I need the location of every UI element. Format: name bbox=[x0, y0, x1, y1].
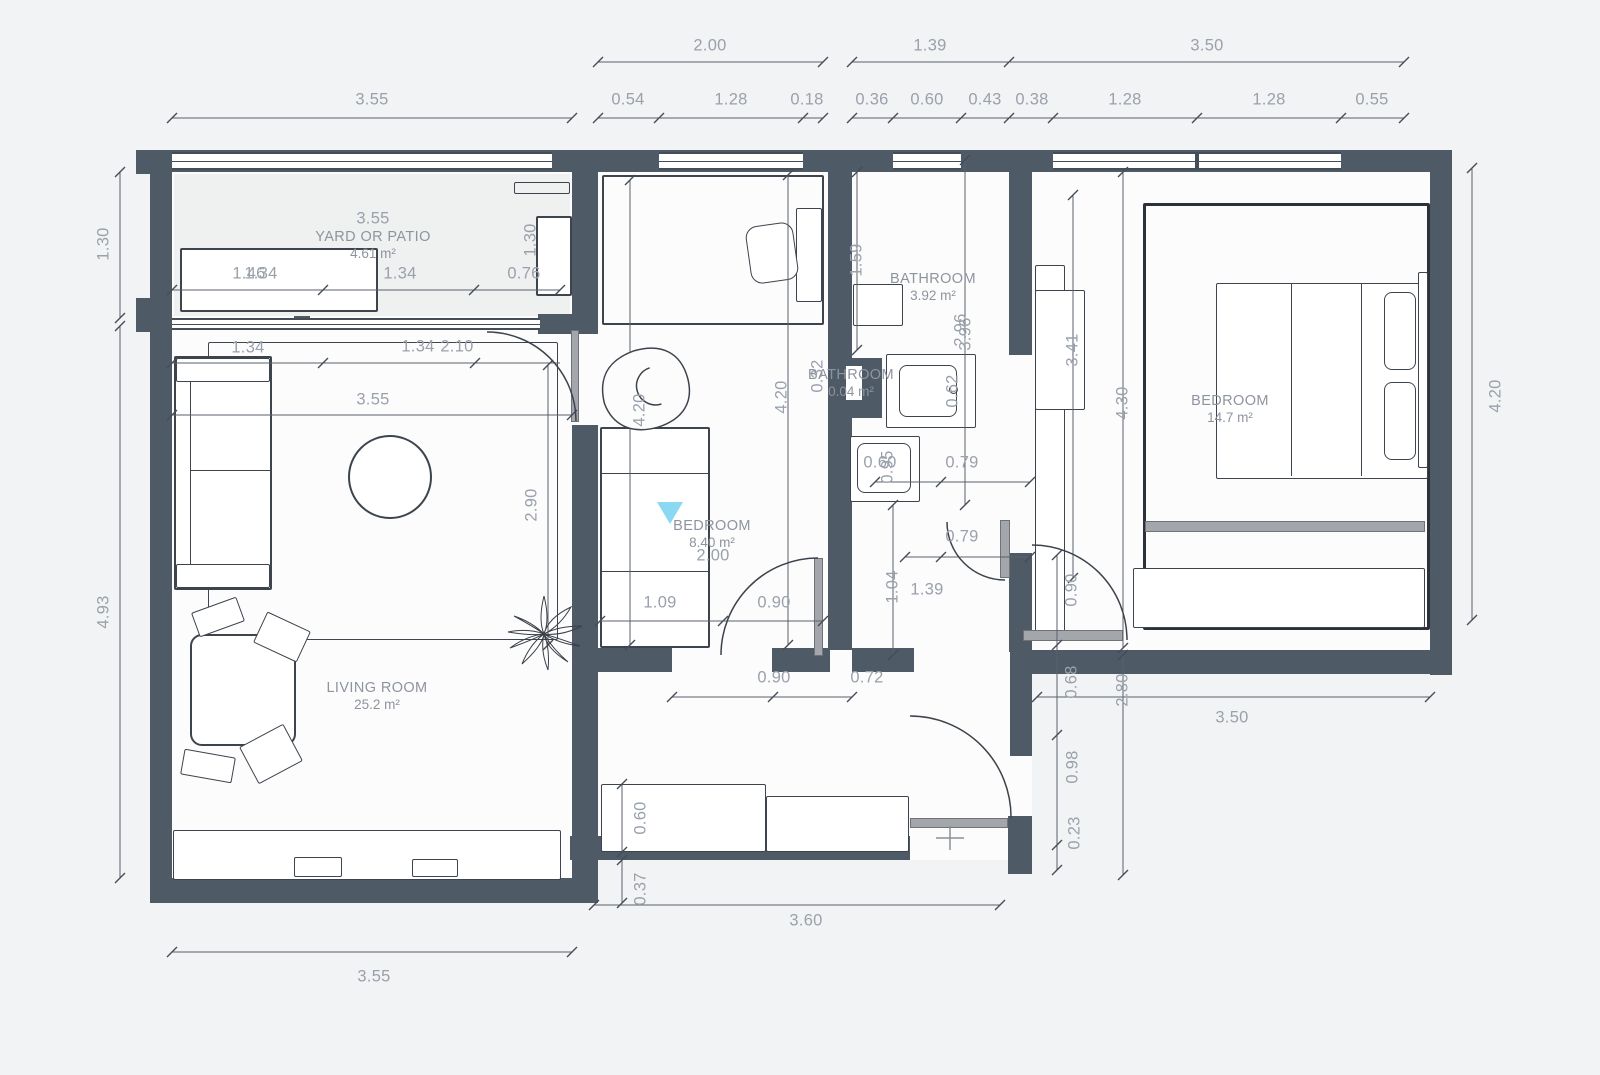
window-mullion bbox=[1195, 152, 1199, 170]
pillow bbox=[1384, 292, 1416, 370]
media-box bbox=[412, 859, 458, 877]
wall-stub-exterior-mid bbox=[136, 298, 150, 332]
dim-label: 0.79 bbox=[945, 528, 978, 547]
window-sill-shelf bbox=[514, 182, 570, 194]
dim-label: 0.90 bbox=[757, 669, 790, 688]
bed-divider-line bbox=[1361, 284, 1362, 476]
dim-label: 4.20 bbox=[631, 393, 650, 426]
dim-label: 0.95 bbox=[879, 450, 898, 483]
door-leaf-bedroom-right bbox=[1023, 630, 1123, 641]
tv-unit bbox=[294, 857, 342, 877]
dim-label: 0.36 bbox=[855, 91, 888, 110]
yard-side-table bbox=[536, 216, 572, 296]
dim-label: 3.55 bbox=[355, 91, 388, 110]
wall-bath-corridor-upper bbox=[1009, 150, 1032, 355]
dim-label: 2.90 bbox=[523, 488, 542, 521]
room-label: YARD OR PATIO4.61 m² bbox=[315, 228, 431, 263]
dim-label: 3.50 bbox=[1215, 709, 1248, 728]
dresser bbox=[1133, 568, 1425, 628]
wall-entrance-corner bbox=[1008, 816, 1032, 874]
bed-pillow-line bbox=[602, 473, 708, 474]
wall-right bbox=[1430, 150, 1452, 675]
window-bedroom-middle bbox=[659, 152, 803, 170]
dim-label: 1.28 bbox=[1252, 91, 1285, 110]
window-yard-living bbox=[172, 318, 540, 330]
wall-yard-divider-stub bbox=[538, 314, 598, 334]
room-name: BEDROOM bbox=[673, 517, 751, 535]
tv-console bbox=[173, 830, 561, 880]
room-name: LIVING ROOM bbox=[326, 679, 427, 697]
dim-label: 1.04 bbox=[884, 570, 903, 603]
room-area: 3.92 m² bbox=[890, 288, 976, 305]
dim-label: 4.93 bbox=[95, 595, 114, 628]
door-leaf-yard-living bbox=[571, 330, 579, 422]
dim-label: 1.59 bbox=[848, 243, 867, 276]
floor-plan: 2.001.393.503.550.541.280.180.360.600.43… bbox=[0, 0, 1600, 1075]
window-bathroom bbox=[893, 152, 961, 170]
dim-label: 2.00 bbox=[693, 37, 726, 56]
dim-label: 1.34 bbox=[231, 339, 264, 358]
desk bbox=[796, 208, 822, 302]
room-name: BATHROOM bbox=[890, 270, 976, 288]
headboard bbox=[1418, 272, 1428, 468]
dim-label: 0.76 bbox=[507, 265, 540, 284]
dim-label: 4.20 bbox=[1487, 379, 1506, 412]
dim-label: 3.55 bbox=[356, 210, 389, 229]
dim-label: 1.34 bbox=[383, 265, 416, 284]
dim-label: 1.34 bbox=[244, 265, 277, 284]
room-name: BATHROOM bbox=[808, 366, 894, 384]
dim-label: 1.28 bbox=[714, 91, 747, 110]
dim-label: 3.55 bbox=[357, 968, 390, 987]
kitchen-counter-right bbox=[766, 796, 909, 852]
sofa-cushion-line bbox=[190, 470, 270, 471]
dim-label: 0.68 bbox=[1063, 665, 1082, 698]
dim-label: 3.96 bbox=[957, 317, 976, 350]
window-yard bbox=[172, 152, 552, 170]
door-leaf-entrance bbox=[910, 818, 1008, 828]
room-name: YARD OR PATIO bbox=[315, 228, 431, 246]
sofa-armrest-top bbox=[176, 358, 270, 382]
room-area: 25.2 m² bbox=[326, 697, 427, 714]
dim-label: 0.60 bbox=[632, 801, 651, 834]
dim-label: 3.50 bbox=[1190, 37, 1223, 56]
sink-unit bbox=[886, 354, 976, 428]
closet-sliding-door bbox=[1145, 521, 1425, 532]
dim-label: 0.37 bbox=[632, 872, 651, 905]
room-label: BEDROOM8.40 m² bbox=[673, 517, 751, 552]
dim-label: 2.80 bbox=[1114, 673, 1133, 706]
dim-label: 4.20 bbox=[773, 380, 792, 413]
sofa bbox=[174, 356, 272, 590]
dim-label: 3.60 bbox=[789, 912, 822, 931]
dim-label: 1.34 bbox=[401, 338, 434, 357]
dim-label: 0.72 bbox=[850, 669, 883, 688]
dim-label: 0.54 bbox=[611, 91, 644, 110]
sofa-back-line bbox=[190, 382, 191, 564]
dim-label: 0.60 bbox=[910, 91, 943, 110]
dim-label: 0.90 bbox=[1063, 573, 1082, 606]
door-leaf-bedroom-middle bbox=[814, 558, 823, 656]
wall-bedroom-bath-lower bbox=[828, 404, 852, 650]
dim-label: 1.39 bbox=[910, 581, 943, 600]
wall-bedroom-south-left bbox=[598, 648, 672, 672]
room-area: 14.7 m² bbox=[1191, 410, 1269, 427]
dim-label: 0.98 bbox=[1064, 750, 1083, 783]
bed-blanket-line bbox=[602, 571, 708, 572]
pillow bbox=[1384, 382, 1416, 460]
room-area: 4.61 m² bbox=[315, 246, 431, 263]
dim-label: 3.41 bbox=[1064, 333, 1083, 366]
wall-living-south bbox=[150, 878, 584, 903]
dim-label: 0.90 bbox=[757, 594, 790, 613]
dim-label: 1.30 bbox=[95, 227, 114, 260]
dim-label: 0.79 bbox=[945, 454, 978, 473]
room-name: BEDROOM bbox=[1191, 392, 1269, 410]
kitchen-counter-left bbox=[601, 784, 766, 852]
wall-corridor-right bbox=[1010, 650, 1032, 756]
dim-label: 1.39 bbox=[913, 37, 946, 56]
wall-stub-exterior-top bbox=[136, 150, 150, 174]
sofa-armrest-bottom bbox=[176, 564, 270, 588]
dim-label: 0.18 bbox=[790, 91, 823, 110]
dim-label: 0.43 bbox=[968, 91, 1001, 110]
dim-label: 0.62 bbox=[944, 374, 963, 407]
door-leaf-corridor bbox=[1000, 520, 1010, 578]
dim-label: 1.28 bbox=[1108, 91, 1141, 110]
bed-divider-line bbox=[1291, 284, 1292, 476]
room-label: BEDROOM14.7 m² bbox=[1191, 392, 1269, 427]
coffee-table bbox=[348, 435, 432, 519]
dim-label: 1.30 bbox=[522, 223, 541, 256]
room-label: BATHROOM3.92 m² bbox=[890, 270, 976, 305]
dim-label: 0.23 bbox=[1066, 816, 1085, 849]
room-area: 0.04 m² bbox=[808, 384, 894, 401]
dim-label: 0.38 bbox=[1015, 91, 1048, 110]
dim-label: 0.55 bbox=[1355, 91, 1388, 110]
dim-label: 2.10 bbox=[440, 338, 473, 357]
wall-living-bedroom-upper bbox=[572, 150, 598, 330]
room-label: BATHROOM0.04 m² bbox=[808, 366, 894, 401]
dim-label: 1.09 bbox=[643, 594, 676, 613]
room-label: LIVING ROOM25.2 m² bbox=[326, 679, 427, 714]
room-area: 8.40 m² bbox=[673, 535, 751, 552]
dim-label: 3.55 bbox=[356, 391, 389, 410]
desk-chair bbox=[744, 221, 800, 285]
dim-label: 4.30 bbox=[1114, 386, 1133, 419]
wall-living-bedroom-lower bbox=[572, 425, 598, 903]
wall-left bbox=[150, 150, 172, 903]
